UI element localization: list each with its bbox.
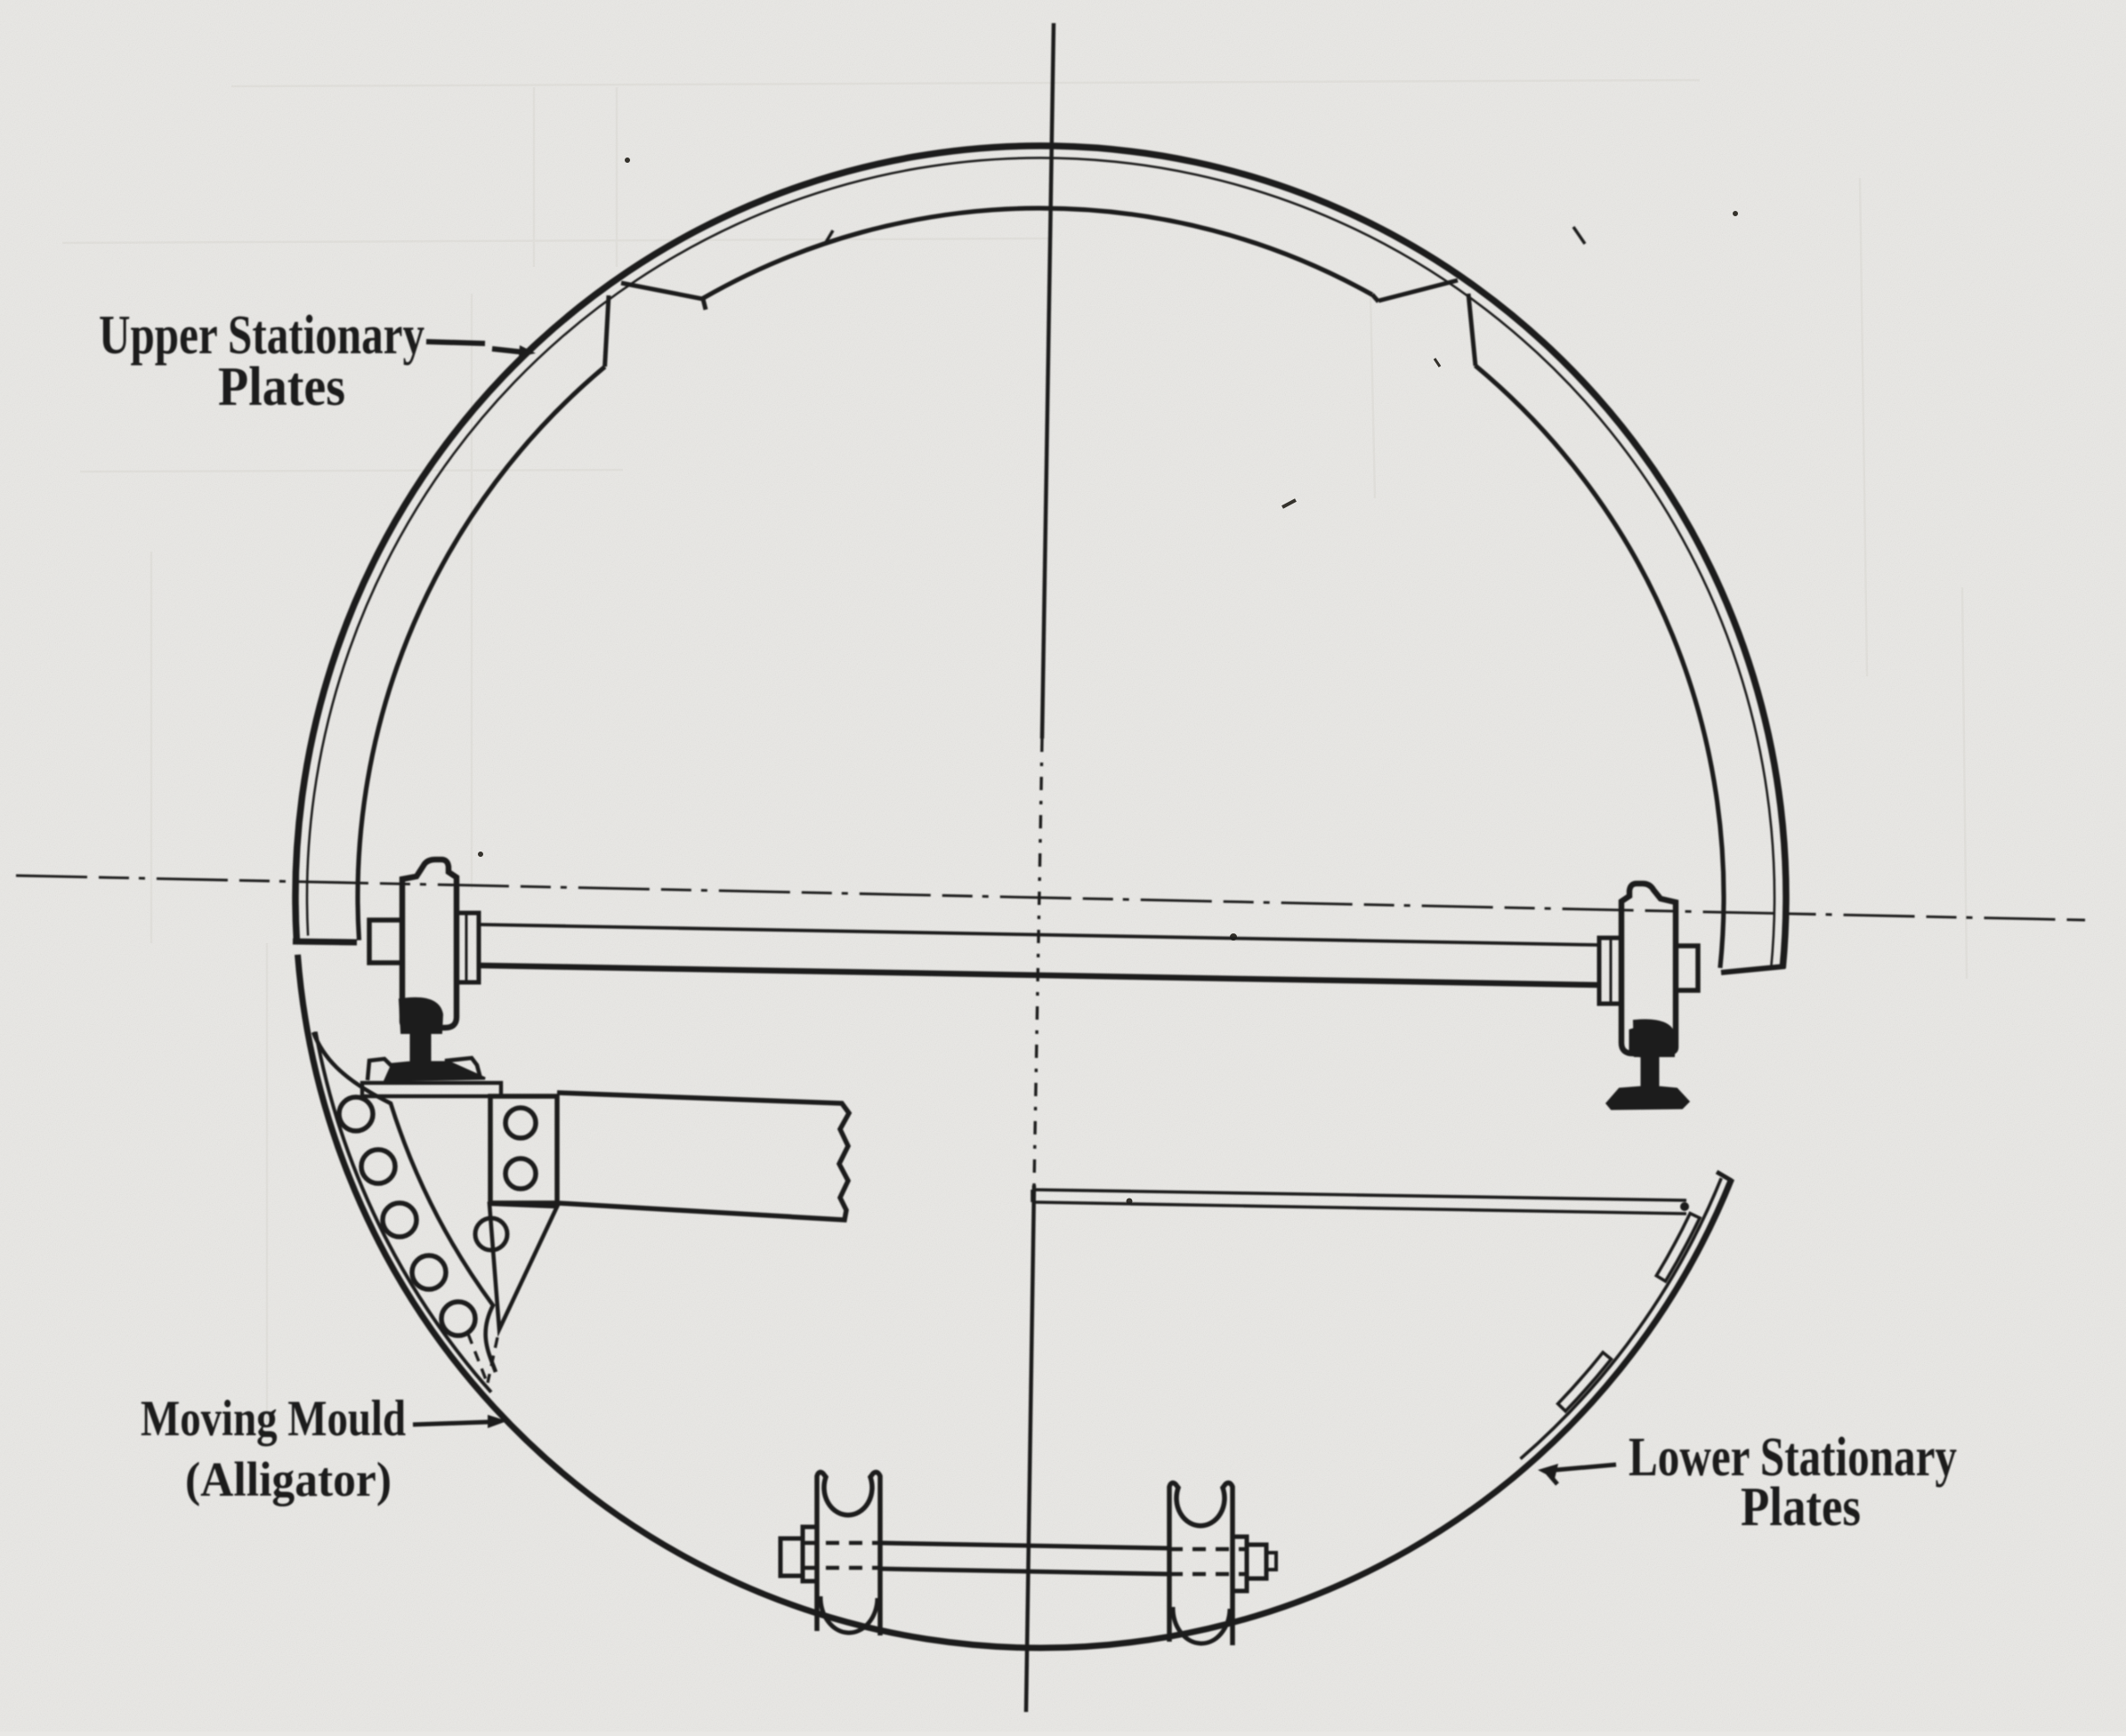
- svg-text:(Alligator): (Alligator): [185, 1452, 392, 1506]
- svg-text:Moving Mould: Moving Mould: [141, 1391, 406, 1447]
- svg-text:Plates: Plates: [1741, 1477, 1861, 1538]
- svg-text:Plates: Plates: [218, 357, 345, 417]
